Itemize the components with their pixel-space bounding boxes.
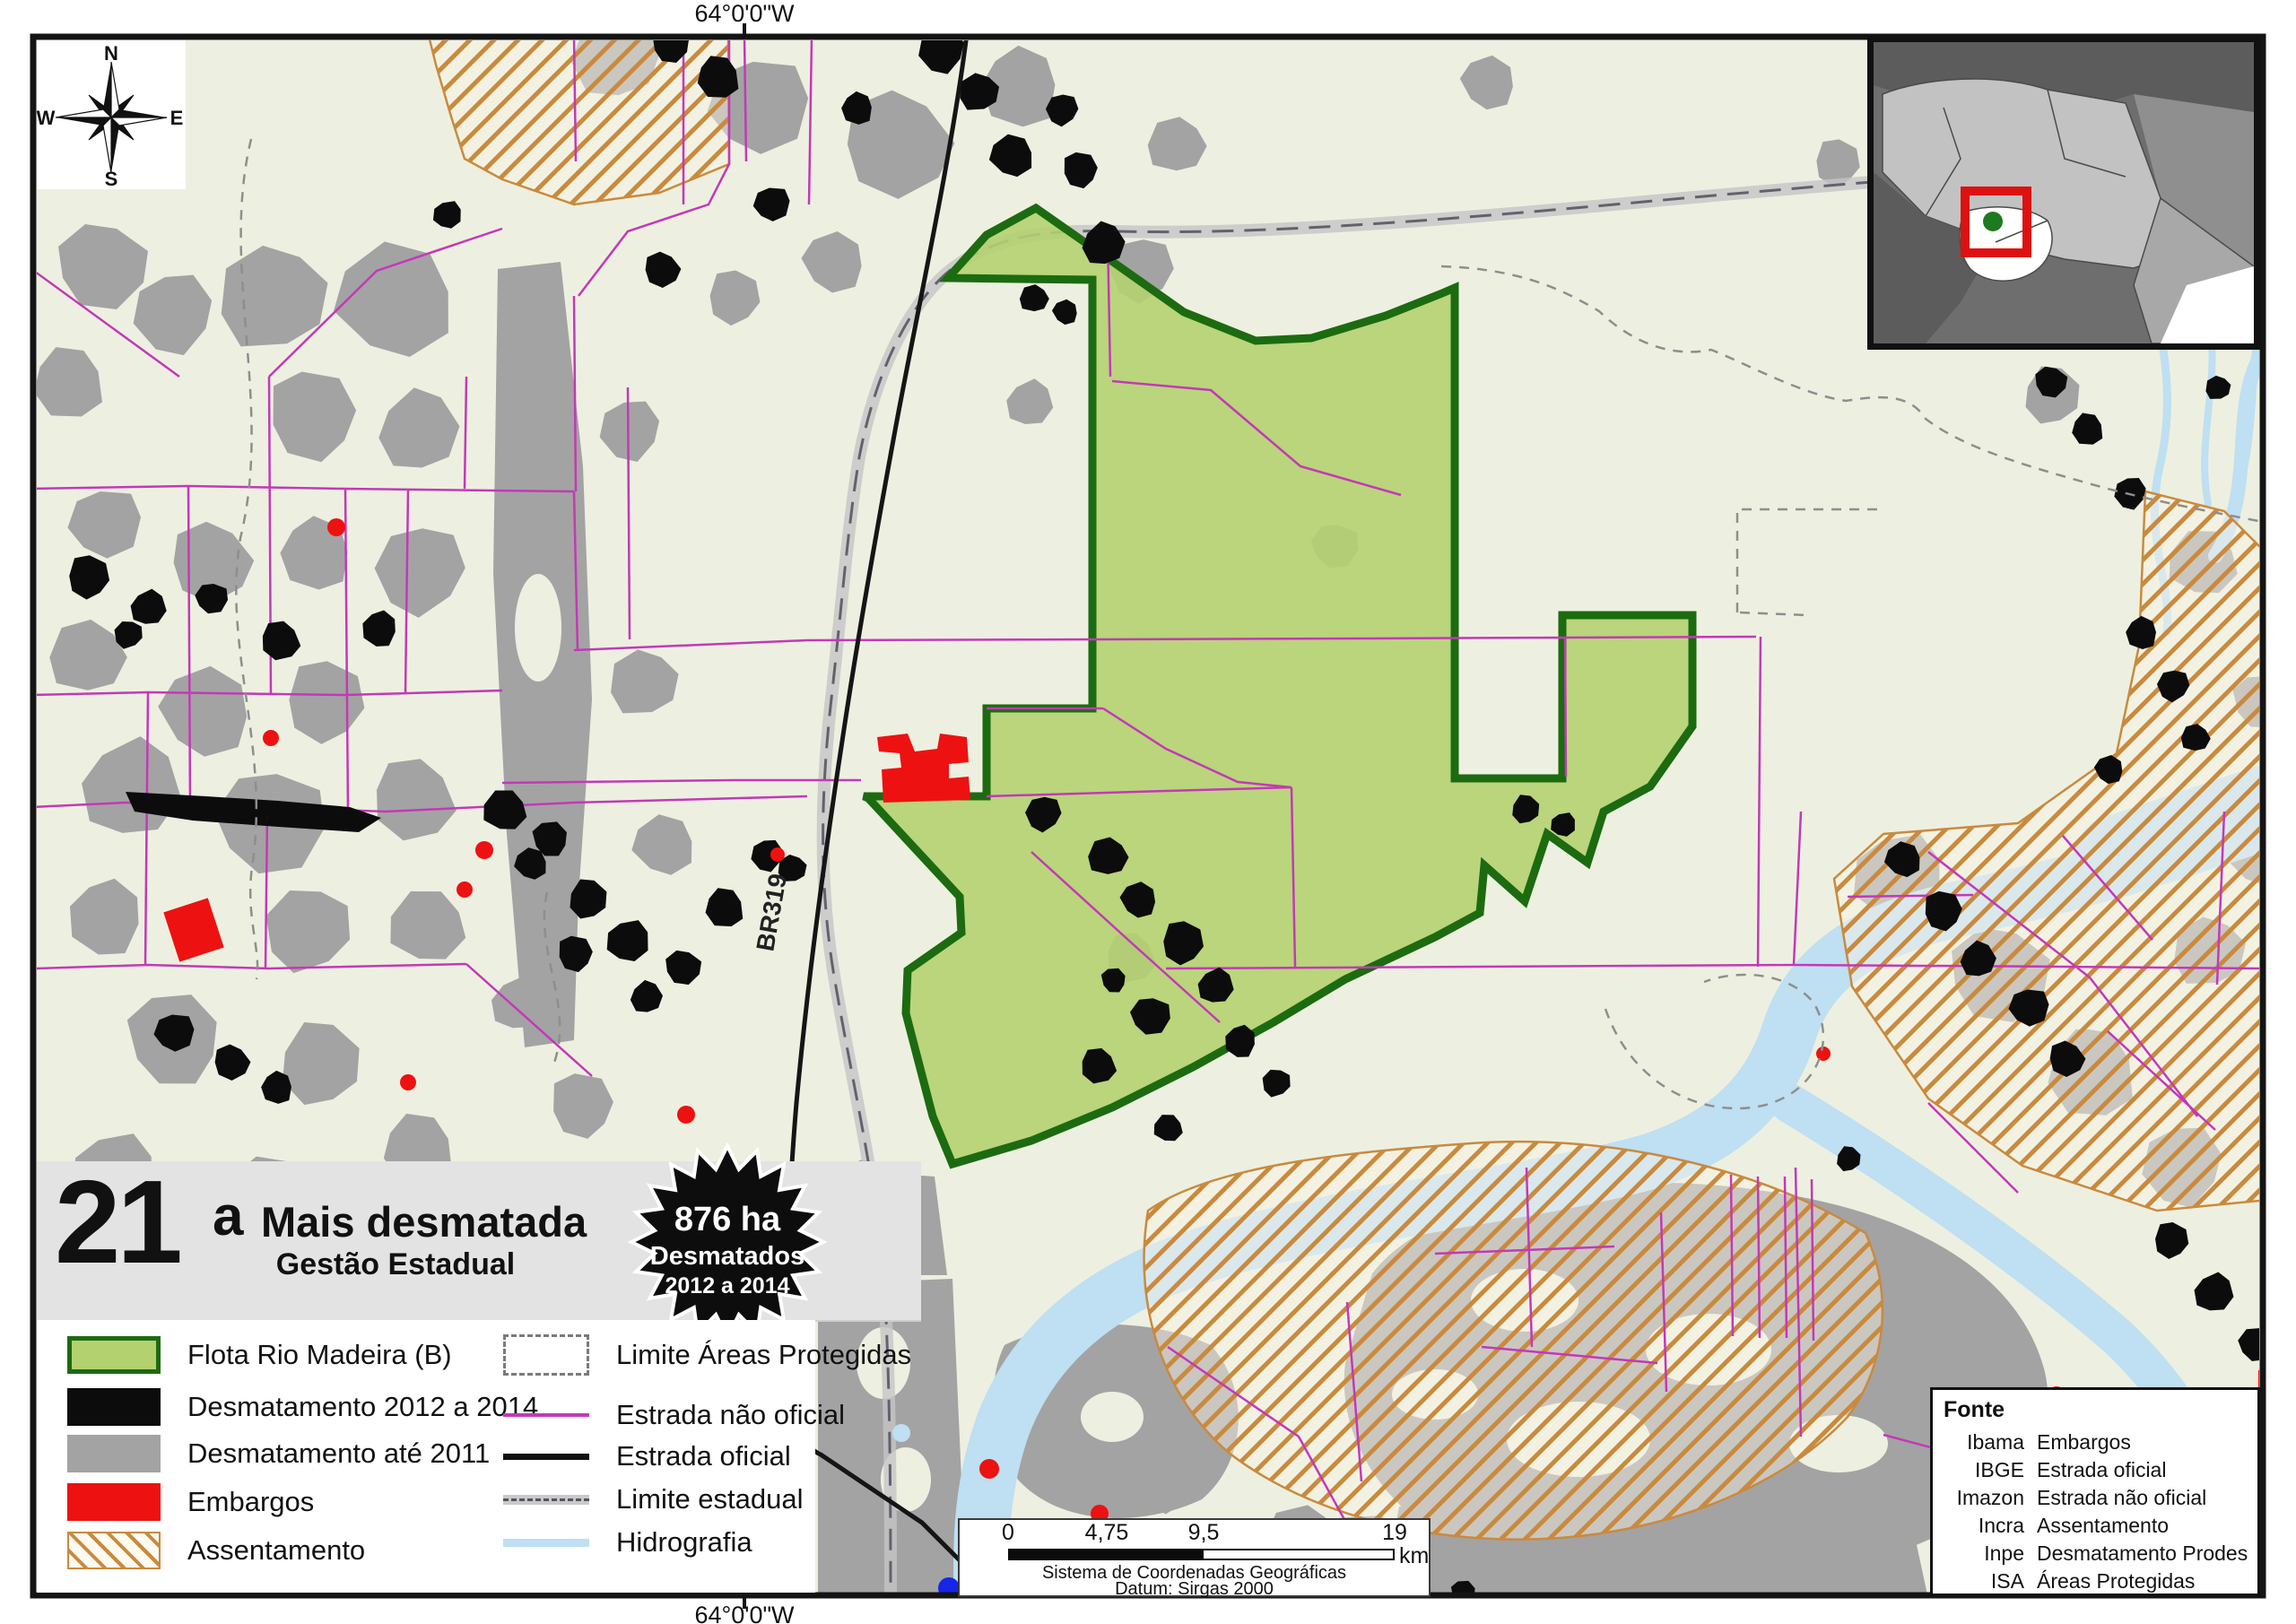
legend-label: Desmatamento até 2011 — [187, 1437, 490, 1470]
badge-value: 876 ha — [674, 1201, 781, 1238]
source-row: ImazonEstrada não oficial — [1942, 1484, 2248, 1512]
inset-location-dot — [1983, 212, 2003, 231]
legend-label: Limite Áreas Protegidas — [616, 1339, 911, 1371]
legend-panel: Flota Rio Madeira (B) Desmatamento 2012 … — [37, 1320, 815, 1593]
legend-label: Assentamento — [187, 1534, 365, 1567]
source-row: InpeDesmatamento Prodes — [1942, 1540, 2248, 1568]
page-subtitle: Gestão Estadual — [261, 1247, 530, 1282]
badge-label: Desmatados — [650, 1242, 804, 1271]
sources-title: Fonte — [1944, 1397, 2248, 1423]
flota-swatch — [67, 1336, 161, 1374]
source-row: IncraAssentamento — [1942, 1512, 2248, 1540]
legend-label: Limite estadual — [616, 1483, 804, 1515]
scale-tick: 9,5 — [1188, 1520, 1220, 1546]
compass-panel: N S W E — [37, 40, 186, 189]
legend-label: Hidrografia — [616, 1526, 752, 1559]
compass-rose-icon: N S W E — [37, 40, 186, 189]
bottom-coordinate-label: 64°0'0"W — [694, 1602, 794, 1624]
top-coordinate-label: 64°0'0"W — [694, 0, 794, 28]
rank-suffix: a — [213, 1185, 243, 1248]
legend-label: Flota Rio Madeira (B) — [187, 1339, 452, 1371]
compass-w: W — [37, 107, 56, 129]
scale-tick: 19 — [1382, 1520, 1407, 1546]
inset-locator-map — [1867, 36, 2260, 350]
unofficial-road-swatch — [503, 1413, 589, 1417]
badge-period: 2012 a 2014 — [665, 1273, 789, 1298]
legend-label: Estrada oficial — [616, 1440, 791, 1472]
compass-s: S — [105, 168, 118, 189]
legend-label: Embargos — [187, 1486, 314, 1518]
sources-panel: Fonte IbamaEmbargos IBGEEstrada oficial … — [1930, 1387, 2260, 1596]
scale-bar — [1008, 1549, 1395, 1560]
crs-line2: Datum: Sirgas 2000 — [960, 1579, 1429, 1600]
assentamento-swatch — [67, 1532, 161, 1569]
deforestation-2012-2014-swatch — [67, 1388, 161, 1426]
scale-bar-panel: 0 4,75 9,5 19 km Sistema de Coordenadas … — [958, 1518, 1431, 1597]
source-row: IbamaEmbargos — [1942, 1429, 2248, 1456]
official-road-swatch — [503, 1454, 589, 1460]
compass-n: N — [104, 42, 118, 65]
map-sheet: BR319 64°0'0"W 64°0'0"W N S W E — [0, 0, 2296, 1624]
rank-number: 21 — [55, 1154, 179, 1290]
deforestation-until-2011-swatch — [67, 1435, 161, 1472]
legend-label: Desmatamento 2012 a 2014 — [187, 1391, 538, 1423]
source-row: ISAÁreas Protegidas — [1942, 1568, 2248, 1595]
state-limit-swatch — [503, 1495, 589, 1505]
embargos-swatch — [67, 1483, 161, 1521]
page-title: Mais desmatada — [261, 1197, 587, 1246]
compass-e: E — [170, 107, 184, 129]
legend-label: Estrada não oficial — [616, 1399, 845, 1431]
source-row: IBGEEstrada oficial — [1942, 1456, 2248, 1484]
scale-tick: 4,75 — [1085, 1520, 1129, 1546]
protected-area-limit-swatch — [503, 1334, 589, 1376]
deforested-area-badge: 876 ha Desmatados 2012 a 2014 — [628, 1141, 827, 1343]
scale-tick: 0 — [1002, 1520, 1014, 1546]
hydrography-swatch — [503, 1539, 589, 1547]
